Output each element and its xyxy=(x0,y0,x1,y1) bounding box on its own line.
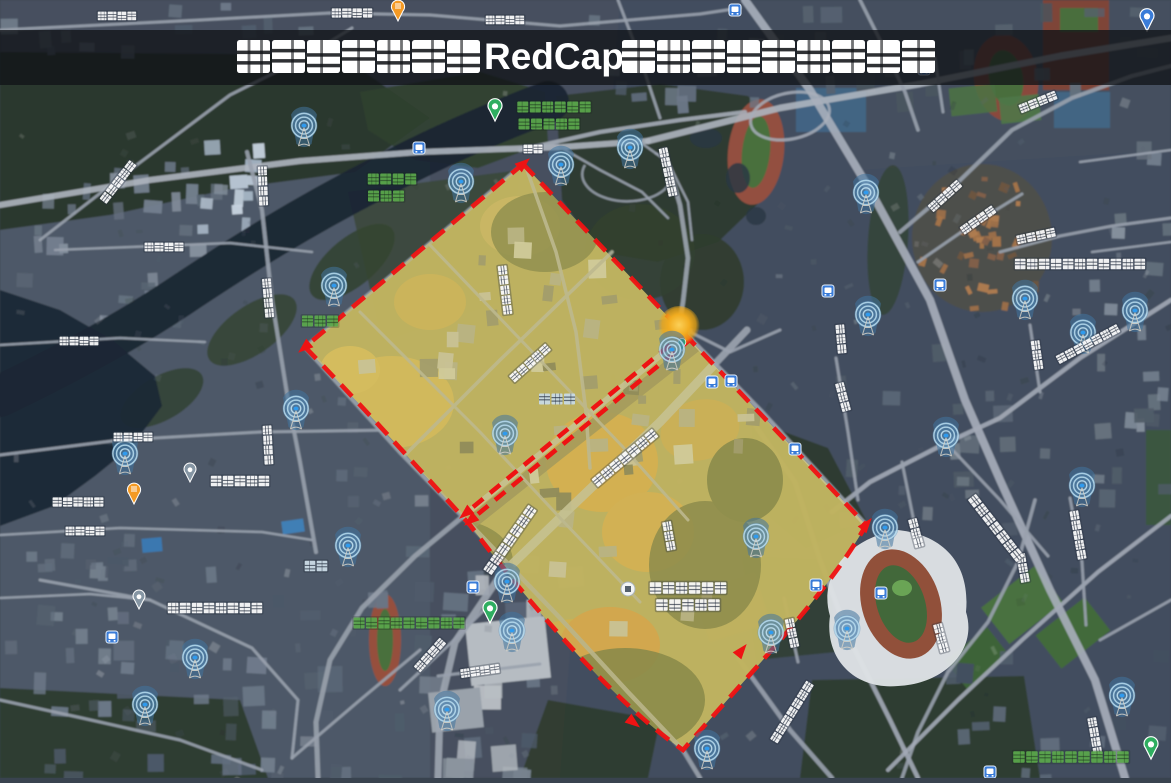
svg-text:RedCap: RedCap xyxy=(484,36,624,77)
